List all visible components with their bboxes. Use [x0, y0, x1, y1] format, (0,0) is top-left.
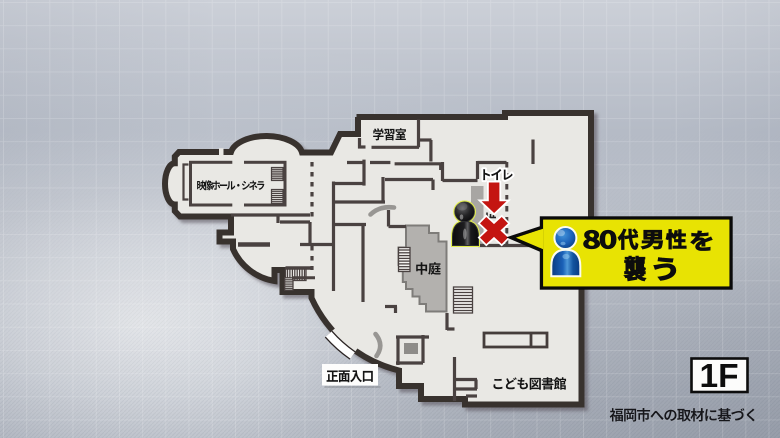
- svg-text:1F: 1F: [699, 358, 738, 395]
